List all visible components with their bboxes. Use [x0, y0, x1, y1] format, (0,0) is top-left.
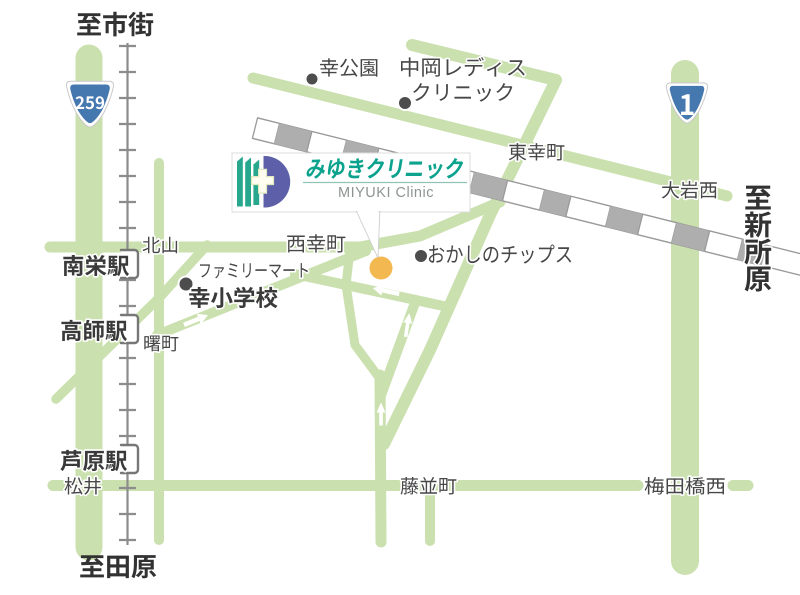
svg-text:MIYUKI Clinic: MIYUKI Clinic	[338, 185, 434, 201]
